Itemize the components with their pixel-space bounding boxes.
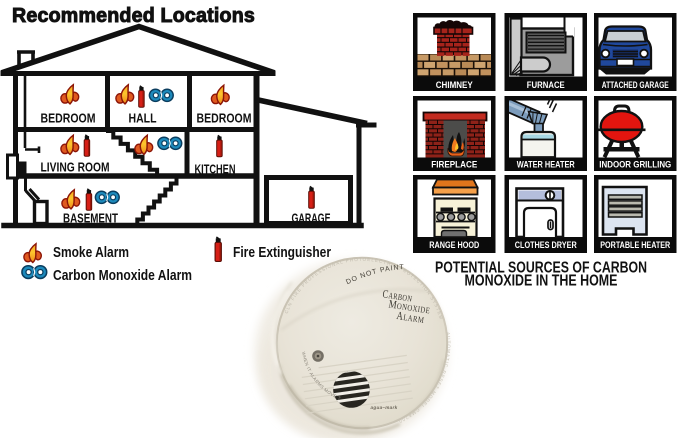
svg-text:CLOTHES DRYER: CLOTHES DRYER — [515, 240, 577, 251]
svg-text:Smoke Alarm: Smoke Alarm — [53, 245, 129, 261]
svg-text:Recommended Locations: Recommended Locations — [12, 4, 255, 27]
svg-text:PORTABLE HEATER: PORTABLE HEATER — [600, 240, 670, 251]
svg-text:MONOXIDE IN THE HOME: MONOXIDE IN THE HOME — [465, 272, 618, 289]
svg-text:KITCHEN: KITCHEN — [195, 163, 236, 177]
svg-text:GARAGE: GARAGE — [292, 212, 331, 226]
svg-text:WATER HEATER: WATER HEATER — [517, 160, 575, 171]
svg-text:ATTACHED GARAGE: ATTACHED GARAGE — [602, 80, 669, 91]
svg-text:BEDROOM: BEDROOM — [41, 112, 96, 126]
svg-text:BEDROOM: BEDROOM — [197, 112, 252, 126]
svg-text:FURNACE: FURNACE — [527, 80, 565, 91]
svg-text:BASEMENT: BASEMENT — [63, 212, 118, 226]
svg-text:FIREPLACE: FIREPLACE — [431, 160, 477, 171]
svg-text:RANGE HOOD: RANGE HOOD — [429, 240, 479, 251]
svg-text:LIVING ROOM: LIVING ROOM — [41, 161, 110, 175]
svg-text:INDOOR GRILLING: INDOOR GRILLING — [599, 160, 671, 171]
svg-text:Carbon Monoxide Alarm: Carbon Monoxide Alarm — [53, 268, 192, 284]
svg-text:HALL: HALL — [129, 112, 157, 126]
svg-text:agua–mark: agua–mark — [371, 405, 398, 410]
svg-text:CHIMNEY: CHIMNEY — [436, 80, 474, 91]
svg-text:Fire Extinguisher: Fire Extinguisher — [233, 245, 331, 261]
